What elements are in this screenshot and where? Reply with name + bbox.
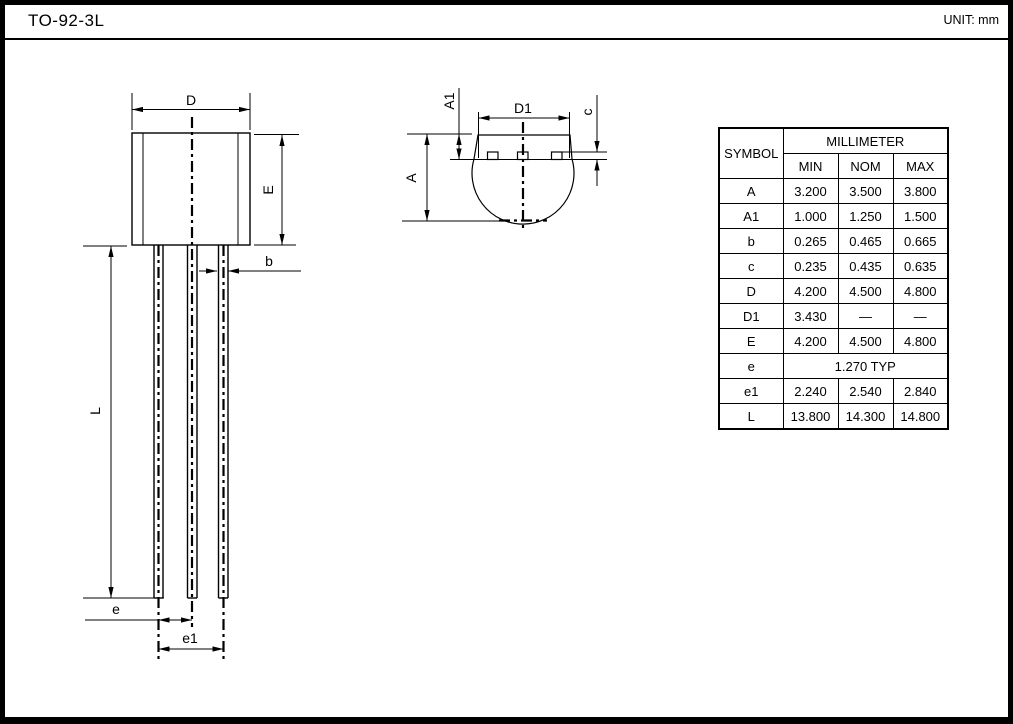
symbol-header-cell: SYMBOL: [719, 128, 783, 179]
nom-cell: 4.500: [838, 279, 893, 304]
dimension-a: A: [402, 134, 510, 221]
arrowhead-icon: [159, 646, 170, 651]
min-cell: 3.430: [783, 304, 838, 329]
nom-cell: 0.435: [838, 254, 893, 279]
dim-label-e1: e1: [182, 630, 198, 646]
nom-cell: —: [838, 304, 893, 329]
dimension-e1: e1: [159, 630, 224, 652]
front-view-centerlines: [159, 117, 224, 660]
symbol-cell: e1: [719, 379, 783, 404]
dimension-l: L: [83, 246, 164, 598]
arrowhead-icon: [594, 160, 599, 171]
top-view-centerlines: [499, 122, 547, 228]
symbol-cell: b: [719, 229, 783, 254]
min-cell: 0.265: [783, 229, 838, 254]
table-row: b 0.265 0.465 0.665: [719, 229, 948, 254]
symbol-cell: L: [719, 404, 783, 430]
nom-cell: 1.250: [838, 204, 893, 229]
arrowhead-icon: [559, 115, 570, 120]
span-cell: 1.270 TYP: [783, 354, 948, 379]
arrowhead-icon: [424, 210, 429, 221]
table-row: A 3.200 3.500 3.800: [719, 179, 948, 204]
dim-label-d1: D1: [514, 100, 532, 116]
nom-cell: 2.540: [838, 379, 893, 404]
table-row: c 0.235 0.435 0.635: [719, 254, 948, 279]
dimension-a1: A1: [407, 88, 472, 160]
max-cell: 4.800: [893, 279, 948, 304]
lead-cross-section: [552, 152, 563, 160]
max-cell: 4.800: [893, 329, 948, 354]
dim-label-e-body: E: [260, 185, 276, 194]
arrowhead-icon: [213, 646, 224, 651]
symbol-cell: D1: [719, 304, 783, 329]
symbol-cell: D: [719, 279, 783, 304]
min-cell: 0.235: [783, 254, 838, 279]
dim-label-l: L: [87, 407, 103, 415]
dim-label-a: A: [403, 173, 419, 183]
millimeter-header-cell: MILLIMETER: [783, 128, 948, 154]
nom-cell: 3.500: [838, 179, 893, 204]
dim-label-a1: A1: [441, 92, 457, 109]
dimension-b: b: [199, 253, 301, 274]
table-row: D 4.200 4.500 4.800: [719, 279, 948, 304]
arrowhead-icon: [456, 149, 461, 160]
arrowhead-icon: [279, 234, 284, 245]
min-cell: 4.200: [783, 329, 838, 354]
table-row: A1 1.000 1.250 1.500: [719, 204, 948, 229]
nom-header-cell: NOM: [838, 154, 893, 179]
arrowhead-icon: [108, 246, 113, 257]
table-row: L 13.800 14.300 14.800: [719, 404, 948, 430]
dimension-table: SYMBOL MILLIMETER MIN NOM MAX A 3.200 3.…: [718, 127, 949, 430]
arrowhead-icon: [132, 107, 143, 112]
min-cell: 1.000: [783, 204, 838, 229]
arrowhead-icon: [594, 141, 599, 152]
min-cell: 4.200: [783, 279, 838, 304]
arrowhead-icon: [479, 115, 490, 120]
dimension-e-body: E: [254, 135, 299, 246]
arrowhead-icon: [424, 134, 429, 145]
top-view: A1 A D1: [402, 88, 607, 228]
arrowhead-icon: [108, 587, 113, 598]
arrowhead-icon: [159, 617, 170, 622]
table-row: e1 2.240 2.540 2.840: [719, 379, 948, 404]
arrowhead-icon: [206, 268, 217, 273]
min-cell: 3.200: [783, 179, 838, 204]
table-row: D1 3.430 — —: [719, 304, 948, 329]
symbol-cell: c: [719, 254, 783, 279]
max-cell: 0.665: [893, 229, 948, 254]
arrowhead-icon: [181, 617, 192, 622]
max-cell: 1.500: [893, 204, 948, 229]
min-cell: 2.240: [783, 379, 838, 404]
symbol-cell: A1: [719, 204, 783, 229]
dim-label-d: D: [186, 92, 196, 108]
dim-label-b: b: [265, 253, 273, 269]
nom-cell: 4.500: [838, 329, 893, 354]
symbol-cell: A: [719, 179, 783, 204]
arrowhead-icon: [228, 268, 239, 273]
dim-label-e-pitch: e: [112, 601, 120, 617]
table-row: E 4.200 4.500 4.800: [719, 329, 948, 354]
nom-cell: 0.465: [838, 229, 893, 254]
nom-cell: 14.300: [838, 404, 893, 430]
lead-cross-section: [488, 152, 499, 160]
package-drawing-page: TO-92-3L UNIT: mm: [0, 0, 1013, 724]
dimension-c: c: [579, 95, 600, 186]
max-header-cell: MAX: [893, 154, 948, 179]
max-cell: 14.800: [893, 404, 948, 430]
arrowhead-icon: [239, 107, 250, 112]
table-header-row: SYMBOL MILLIMETER: [719, 128, 948, 154]
dimension-e-pitch: e: [85, 601, 192, 623]
dim-label-c: c: [579, 109, 595, 116]
table-row: e 1.270 TYP: [719, 354, 948, 379]
max-cell: 3.800: [893, 179, 948, 204]
min-cell: 13.800: [783, 404, 838, 430]
arrowhead-icon: [456, 134, 461, 145]
symbol-cell: e: [719, 354, 783, 379]
front-view: D E b: [83, 92, 301, 660]
max-cell: 0.635: [893, 254, 948, 279]
arrowhead-icon: [279, 135, 284, 146]
min-header-cell: MIN: [783, 154, 838, 179]
top-view-body: [450, 135, 607, 224]
max-cell: 2.840: [893, 379, 948, 404]
symbol-cell: E: [719, 329, 783, 354]
max-cell: —: [893, 304, 948, 329]
